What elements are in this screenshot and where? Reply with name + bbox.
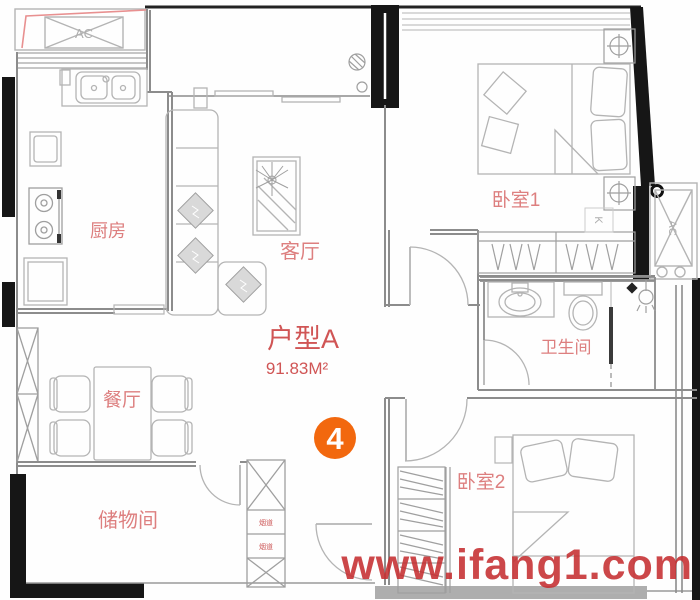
bathroom-door	[484, 340, 529, 385]
unit-title: 户型A	[267, 324, 339, 354]
duct-label-bottom: 烟道	[259, 542, 273, 551]
storage-door	[200, 465, 240, 505]
room-label-bedroom1: 卧室1	[492, 189, 541, 211]
room-label-kitchen: 厨房	[90, 221, 126, 241]
dining-chairs	[50, 376, 192, 456]
floor-plan-canvas: AC 厨房	[0, 0, 700, 600]
kitchen-appliance	[30, 132, 61, 166]
storage-walls	[17, 462, 247, 466]
room-label-dining: 餐厅	[103, 389, 141, 411]
room-label-living: 客厅	[280, 240, 320, 263]
room-label-storage: 储物间	[98, 509, 158, 532]
bedroom2-door	[405, 399, 467, 461]
column-marker-icon-top	[604, 29, 635, 63]
balcony-drain-icon	[349, 54, 367, 92]
floor-plan-page: AC 厨房	[0, 0, 700, 600]
bedroom1-window-band	[402, 13, 630, 30]
badge-number: 4	[326, 421, 344, 456]
balcony	[168, 88, 370, 108]
room-label-bathroom: 卫生间	[541, 338, 592, 357]
plant-icon	[256, 162, 288, 196]
ac-label-top: AC	[75, 26, 93, 41]
column-marker-icon-bottom	[604, 177, 635, 210]
nightstand	[495, 437, 512, 463]
kitchen-stove	[29, 188, 62, 244]
bedroom1-bed	[478, 64, 630, 174]
kitchen-sink	[60, 69, 147, 106]
toilet	[564, 282, 602, 330]
kitchen-walls	[17, 92, 172, 313]
bathroom-walls	[480, 277, 655, 390]
dining-window-left	[17, 328, 38, 462]
unit-area: 91.83M²	[266, 359, 329, 378]
shower-head-icon	[626, 280, 655, 313]
bedroom1-door	[410, 247, 468, 305]
shower-partition	[609, 282, 613, 390]
outer-walls	[17, 7, 641, 585]
wardrobe-bedroom1	[478, 232, 655, 280]
ac-label-right: AC	[666, 220, 678, 235]
bathroom-sink	[488, 282, 554, 317]
watermark-text: www.ifang1.com	[340, 541, 693, 589]
sofa-cushions	[178, 193, 261, 302]
tv-cabinet	[253, 157, 300, 235]
badge-4: 4	[314, 417, 356, 459]
dining-table	[94, 367, 151, 460]
k-label: K	[592, 216, 604, 224]
duct-label-top: 烟道	[259, 518, 273, 527]
kitchen-cabinet	[24, 258, 67, 305]
room-label-bedroom2: 卧室2	[457, 471, 506, 493]
